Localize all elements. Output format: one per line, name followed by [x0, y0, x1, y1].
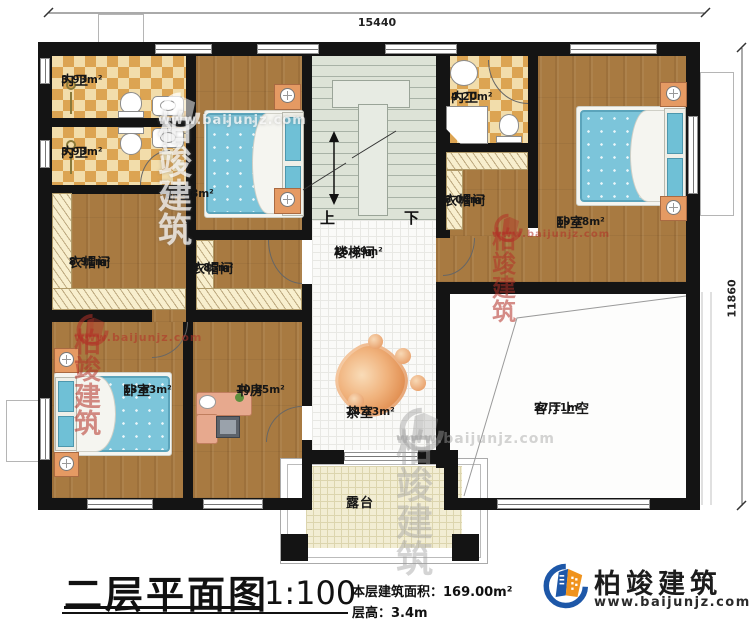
wall-right — [686, 42, 700, 510]
study-desk-side — [196, 414, 218, 444]
right-ledge-outline — [700, 72, 734, 216]
window-left-1 — [40, 58, 50, 84]
bed-3-pillow-b — [58, 416, 74, 447]
window-left-2 — [40, 140, 50, 168]
window-top-3 — [385, 44, 457, 54]
bed-1-pillow-a — [285, 117, 301, 161]
wall-bottom-left — [38, 498, 312, 510]
wall-stair-right-b — [436, 282, 450, 468]
chimney-outline — [98, 14, 144, 44]
sink-1-basin — [160, 100, 176, 111]
wall-closets-bottom-b — [190, 310, 312, 322]
bed-3-pillow-a — [58, 381, 74, 412]
wall-stair-left-b — [302, 284, 312, 406]
toilet-3-tank — [496, 136, 522, 143]
wall-stair-left-c — [302, 440, 312, 498]
toilet-1-tank — [118, 111, 144, 118]
window-right-1 — [688, 116, 698, 194]
wall-bedroom1-closet2 — [186, 230, 312, 240]
window-left-3 — [40, 398, 50, 460]
toilet-2-bowl — [120, 133, 142, 155]
window-bottom-3 — [497, 499, 650, 509]
bed-1-lamp-b — [280, 192, 295, 207]
bed-2-pillow-a — [667, 113, 683, 154]
wall-bath3-closet3 — [446, 143, 538, 152]
bed-3-lamp-b — [59, 456, 74, 471]
stair-up-label: 上 — [320, 207, 335, 228]
sink-3 — [450, 60, 478, 86]
toilet-3-bowl — [499, 114, 519, 136]
window-bottom-2 — [203, 499, 263, 509]
bed-3-blanket — [76, 376, 116, 452]
plan-title: 二层平面图 — [64, 564, 269, 619]
door-gap-floor — [152, 310, 190, 322]
bed-2-pillow-b — [667, 158, 683, 199]
brand-logo-icon — [540, 560, 590, 612]
tea-stool-3 — [410, 375, 426, 391]
bed-2-lamp-a — [666, 86, 681, 101]
window-top-4 — [570, 44, 657, 54]
tea-stool-1 — [368, 334, 383, 349]
wall-closet3-bedroom2 — [528, 56, 538, 228]
bed-2-lamp-b — [666, 200, 681, 215]
bed-2-blanket — [630, 110, 666, 202]
bed-1-lamp-a — [280, 88, 295, 103]
terrace-floor — [306, 466, 462, 548]
dimension-top: 15440 — [340, 16, 414, 29]
closet-2-rack-bottom — [196, 288, 302, 310]
title-underline-2 — [62, 612, 348, 614]
window-top-2 — [257, 44, 319, 54]
wall-closets-bottom-a — [38, 310, 152, 322]
wall-closet1-closet2 — [186, 188, 196, 322]
floor-height-text: 层高：3.4m — [352, 602, 428, 621]
wall-tea-terrace-right — [418, 450, 458, 464]
stair-down-label: 下 — [404, 207, 419, 228]
terrace-column-left — [281, 534, 308, 561]
brand-url: www.baijunjz.com — [594, 595, 750, 610]
study-monitor-screen — [220, 420, 236, 434]
window-top-1 — [155, 44, 212, 54]
title-underline-1 — [64, 606, 260, 609]
stair-flight-divider — [358, 104, 388, 216]
floor-plan-page: 15440 11860 内卫3.93m² 内卫3.93m² 卧室13.08m² … — [0, 0, 750, 628]
tea-stool-2 — [395, 348, 411, 364]
closet-1-rack-left — [52, 193, 72, 291]
study-lamp — [199, 395, 216, 409]
plan-scale: 1:100 — [264, 574, 356, 612]
closet-1-rack-bottom — [52, 288, 186, 310]
terrace-column-right — [452, 534, 479, 561]
bed-3-lamp-a — [59, 352, 74, 367]
sink-2-basin — [160, 132, 176, 143]
wall-void-top — [436, 282, 700, 294]
left-ledge-outline — [6, 400, 40, 462]
window-bottom-1 — [87, 499, 153, 509]
wall-bedroom3-study — [183, 322, 193, 498]
dimension-right: 11860 — [726, 273, 739, 325]
floor-area-text: 本层建筑面积：169.00m² — [352, 581, 512, 600]
wall-tea-terrace-left — [302, 450, 344, 464]
closet-3-rack-top — [446, 152, 528, 170]
terrace-sliding-door — [344, 452, 418, 461]
towel-rail-1 — [70, 92, 72, 114]
